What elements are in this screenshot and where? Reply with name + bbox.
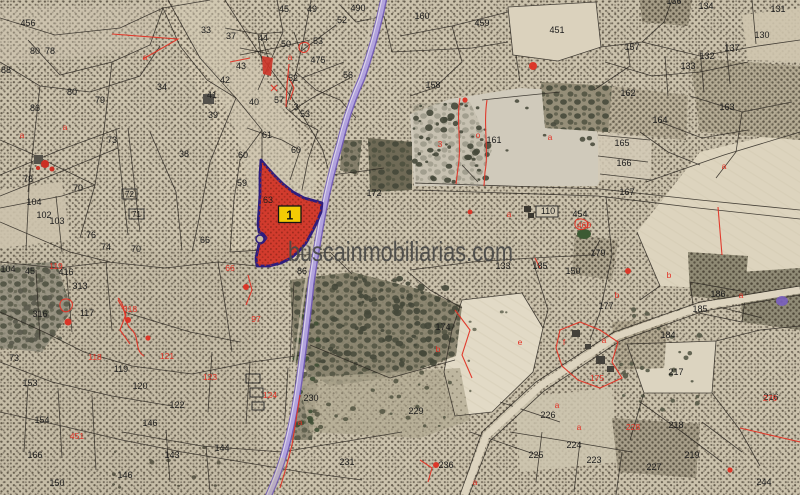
svg-text:78: 78	[45, 46, 55, 56]
svg-text:61: 61	[262, 130, 272, 140]
svg-text:33: 33	[201, 25, 211, 35]
svg-text:a: a	[20, 130, 25, 140]
svg-text:53: 53	[300, 109, 310, 119]
svg-text:86: 86	[30, 103, 40, 113]
svg-text:185: 185	[692, 304, 707, 314]
svg-text:134: 134	[698, 1, 713, 11]
svg-text:110: 110	[541, 206, 555, 216]
svg-text:226: 226	[540, 410, 555, 420]
svg-text:a: a	[143, 52, 148, 62]
svg-text:313: 313	[72, 281, 87, 291]
svg-text:276: 276	[763, 393, 777, 403]
svg-text:57: 57	[274, 95, 284, 105]
svg-text:a: a	[473, 477, 478, 487]
svg-text:236: 236	[438, 460, 453, 470]
svg-text:a: a	[298, 417, 303, 427]
svg-text:146: 146	[117, 470, 132, 480]
svg-text:78: 78	[23, 174, 33, 184]
svg-text:b: b	[436, 344, 441, 354]
svg-text:186: 186	[710, 289, 725, 299]
svg-text:49: 49	[307, 4, 317, 14]
svg-text:97: 97	[251, 314, 261, 324]
svg-text:39: 39	[208, 110, 218, 120]
svg-text:buscainmobiliarias.com: buscainmobiliarias.com	[288, 236, 513, 267]
svg-text:230: 230	[303, 393, 318, 403]
svg-text:119: 119	[49, 261, 63, 271]
svg-text:166: 166	[27, 450, 42, 460]
svg-text:124: 124	[263, 390, 277, 400]
svg-text:228: 228	[626, 422, 640, 432]
svg-text:52: 52	[337, 15, 347, 25]
svg-text:157: 157	[624, 42, 639, 52]
svg-text:153: 153	[22, 378, 37, 388]
svg-text:80: 80	[30, 46, 40, 56]
svg-text:70: 70	[73, 183, 83, 193]
svg-text:80: 80	[67, 87, 77, 97]
svg-text:o: o	[476, 130, 481, 140]
svg-text:74: 74	[101, 242, 111, 252]
svg-text:45: 45	[25, 266, 35, 276]
svg-text:44: 44	[258, 33, 268, 43]
svg-text:a: a	[577, 422, 582, 432]
svg-text:316: 316	[32, 309, 47, 319]
svg-text:40: 40	[249, 97, 259, 107]
svg-text:79: 79	[95, 95, 105, 105]
svg-text:117: 117	[80, 308, 94, 318]
svg-text:490: 490	[350, 3, 365, 13]
svg-text:b: b	[667, 270, 672, 280]
svg-text:136: 136	[666, 0, 681, 6]
svg-text:123: 123	[203, 372, 217, 382]
svg-text:43: 43	[236, 61, 246, 71]
svg-text:76: 76	[86, 230, 96, 240]
svg-text:225: 225	[528, 450, 543, 460]
svg-text:66: 66	[200, 235, 210, 245]
svg-text:73: 73	[107, 135, 117, 145]
svg-text:71: 71	[132, 210, 141, 219]
svg-text:60: 60	[291, 145, 301, 155]
svg-text:167: 167	[619, 187, 634, 197]
svg-text:e: e	[518, 337, 523, 347]
svg-text:132: 132	[699, 51, 714, 61]
svg-text:42: 42	[220, 75, 230, 85]
svg-text:1: 1	[286, 208, 293, 222]
svg-text:161: 161	[486, 135, 501, 145]
svg-text:a: a	[722, 161, 727, 171]
svg-text:45: 45	[279, 4, 289, 14]
svg-text:451: 451	[70, 431, 84, 441]
svg-text:70: 70	[131, 244, 141, 254]
svg-text:86: 86	[297, 266, 307, 276]
svg-text:a: a	[507, 209, 512, 219]
svg-text:223: 223	[586, 455, 601, 465]
svg-text:231: 231	[339, 457, 354, 467]
svg-text:166: 166	[616, 158, 631, 168]
svg-text:120: 120	[132, 381, 147, 391]
svg-text:133: 133	[680, 61, 695, 71]
svg-text:177: 177	[598, 301, 613, 311]
svg-text:158: 158	[425, 80, 440, 90]
svg-text:a: a	[739, 290, 744, 300]
svg-text:59: 59	[237, 178, 247, 188]
svg-text:37: 37	[226, 31, 236, 41]
svg-text:224: 224	[566, 440, 581, 450]
svg-text:a: a	[555, 400, 560, 410]
svg-text:150: 150	[49, 478, 64, 488]
svg-text:229: 229	[408, 406, 423, 416]
svg-text:318: 318	[123, 304, 137, 314]
svg-text:164: 164	[652, 115, 667, 125]
svg-text:165: 165	[614, 138, 629, 148]
svg-text:53: 53	[313, 36, 323, 46]
svg-text:146: 146	[142, 418, 157, 428]
svg-text:63: 63	[263, 195, 273, 205]
svg-text:b: b	[615, 290, 620, 300]
svg-text:143: 143	[164, 450, 179, 460]
svg-text:88: 88	[1, 65, 11, 75]
svg-text:50: 50	[281, 39, 291, 49]
svg-text:72: 72	[125, 190, 134, 199]
svg-text:475: 475	[310, 55, 325, 65]
svg-text:185: 185	[532, 261, 547, 271]
svg-text:60: 60	[238, 150, 248, 160]
svg-text:130: 130	[754, 30, 769, 40]
svg-text:41: 41	[207, 90, 217, 100]
svg-text:66: 66	[225, 263, 235, 273]
svg-text:122: 122	[169, 400, 184, 410]
svg-text:154: 154	[34, 415, 49, 425]
svg-text:144: 144	[214, 443, 229, 453]
svg-text:73: 73	[9, 353, 19, 363]
svg-text:244: 244	[756, 477, 771, 487]
svg-text:a: a	[548, 132, 553, 142]
svg-text:179: 179	[590, 248, 605, 258]
svg-text:34: 34	[157, 82, 167, 92]
svg-text:104: 104	[26, 197, 41, 207]
svg-text:104: 104	[0, 264, 15, 274]
svg-text:454: 454	[572, 209, 587, 219]
svg-text:150: 150	[565, 266, 580, 276]
svg-text:103: 103	[49, 216, 64, 226]
svg-text:218: 218	[668, 420, 683, 430]
svg-text:162: 162	[620, 88, 635, 98]
svg-text:a: a	[63, 122, 68, 132]
svg-text:137: 137	[724, 43, 739, 53]
svg-text:131: 131	[770, 4, 785, 14]
svg-text:121: 121	[160, 351, 174, 361]
svg-text:a: a	[288, 52, 293, 62]
svg-text:163: 163	[719, 102, 734, 112]
svg-text:459: 459	[474, 18, 489, 28]
svg-text:52: 52	[288, 73, 298, 83]
svg-text:172: 172	[366, 188, 381, 198]
svg-text:38: 38	[179, 149, 189, 159]
svg-text:119: 119	[114, 364, 128, 374]
svg-text:219: 219	[684, 450, 699, 460]
svg-text:118: 118	[88, 352, 102, 362]
svg-text:3: 3	[293, 102, 298, 112]
svg-text:a: a	[602, 335, 607, 345]
svg-text:175: 175	[590, 373, 604, 383]
svg-text:217: 217	[668, 367, 683, 377]
svg-text:227: 227	[646, 462, 661, 472]
svg-text:460: 460	[577, 220, 591, 230]
svg-text:160: 160	[414, 11, 429, 21]
svg-text:56: 56	[343, 70, 353, 80]
svg-text:184: 184	[660, 330, 675, 340]
svg-text:3: 3	[438, 139, 443, 149]
svg-text:174: 174	[435, 322, 450, 332]
svg-text:456: 456	[20, 18, 35, 28]
svg-text:451: 451	[549, 25, 564, 35]
